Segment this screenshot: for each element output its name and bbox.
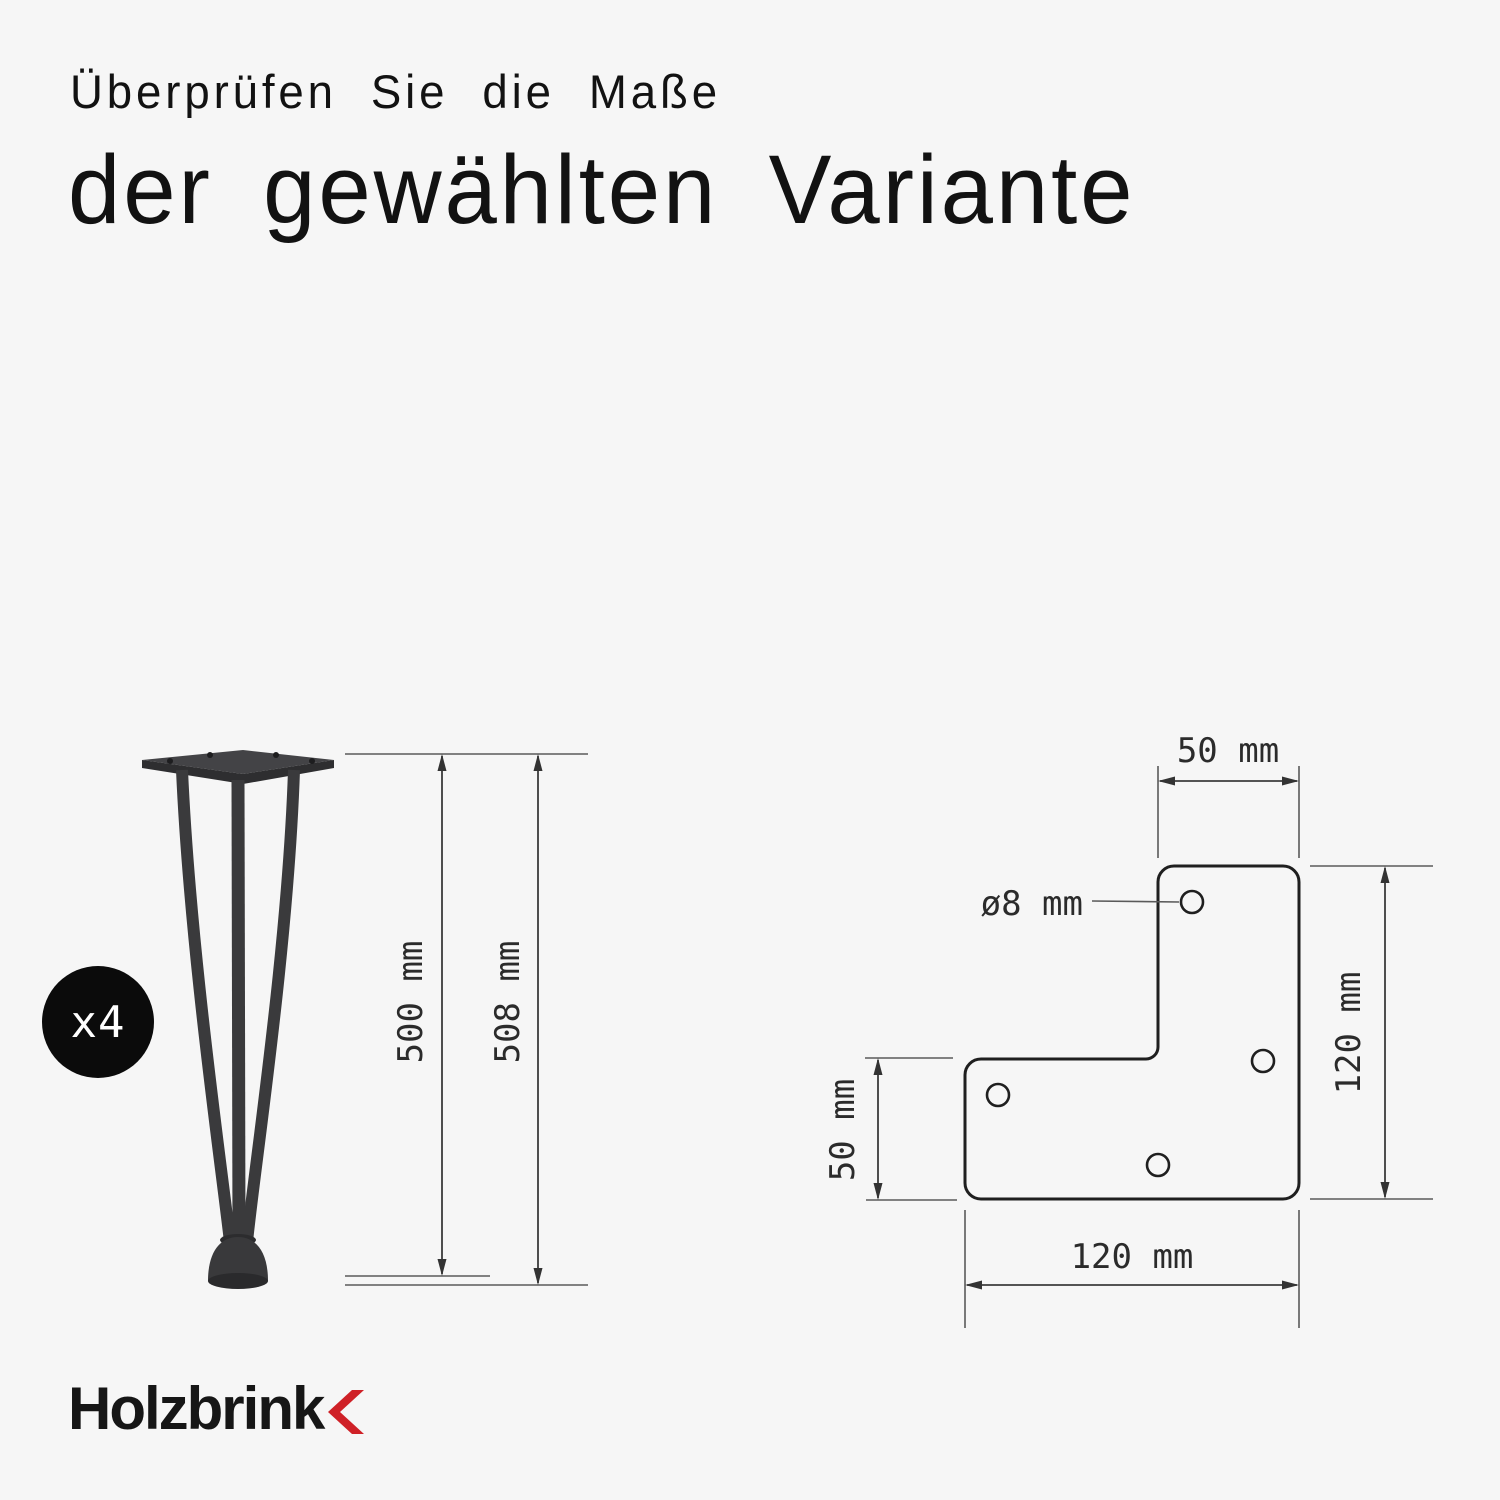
arrow-up-icon [1381,866,1390,883]
plate-dim-hole: ø8 mm [981,884,1179,924]
mounting-plate-diagram: 50 mm ø8 mm 120 mm 50 mm 120 mm [820,720,1450,1350]
arrow-down-icon [534,1268,543,1285]
arrow-left-icon [965,1281,982,1290]
plate-screw-hole [309,758,315,764]
arrow-up-icon [438,754,447,771]
dim-label-left-50mm: 50 mm [823,1079,863,1181]
brand-chevron-icon [328,1388,364,1436]
page-title-line1: Überprüfen Sie die Maße [70,64,721,119]
arrow-down-icon [1381,1182,1390,1199]
dim-label-500mm: 500 mm [391,941,431,1064]
page-title-line2: der gewählten Variante [68,134,1135,246]
plate-dim-left: 50 mm [823,1058,957,1200]
plate-dim-right: 120 mm [1310,866,1433,1199]
plate-dim-top: 50 mm [1158,731,1299,858]
hairpin-leg-diagram: 500 mm 508 mm [130,740,610,1310]
arrow-left-icon [1158,777,1175,786]
plate-hole-bottom [1147,1154,1169,1176]
plate-hole-left [987,1084,1009,1106]
brand-logo-text: Holzbrink [68,1374,323,1443]
dim-label-hole-diameter: ø8 mm [981,884,1083,924]
arrow-right-icon [1282,1281,1299,1290]
arrow-up-icon [534,754,543,771]
dim-label-right-120mm: 120 mm [1329,972,1369,1095]
plate-screw-hole [207,752,213,758]
dim-label-bottom-120mm: 120 mm [1071,1237,1194,1277]
dim-label-508mm: 508 mm [488,941,528,1064]
plate-hole-right [1252,1050,1274,1072]
plate-screw-hole [273,752,279,758]
dim-label-top-50mm: 50 mm [1177,731,1279,771]
arrow-down-icon [874,1183,883,1200]
leg-foot-base [208,1273,268,1289]
plate-hole-top [1181,891,1203,913]
leg-rod-middle [238,780,239,1242]
leg-dimensions: 500 mm 508 mm [345,754,588,1285]
leg-rod-right [247,770,294,1242]
plate-screw-hole [167,758,173,764]
arrow-down-icon [438,1259,447,1276]
leg-rod-left [182,770,230,1242]
plate-dim-bottom: 120 mm [965,1210,1299,1328]
arrow-up-icon [874,1058,883,1075]
quantity-badge-label: x4 [71,997,126,1048]
arrow-right-icon [1282,777,1299,786]
hairpin-leg-illustration [142,750,334,1289]
brand-logo: Holzbrink [68,1374,364,1443]
